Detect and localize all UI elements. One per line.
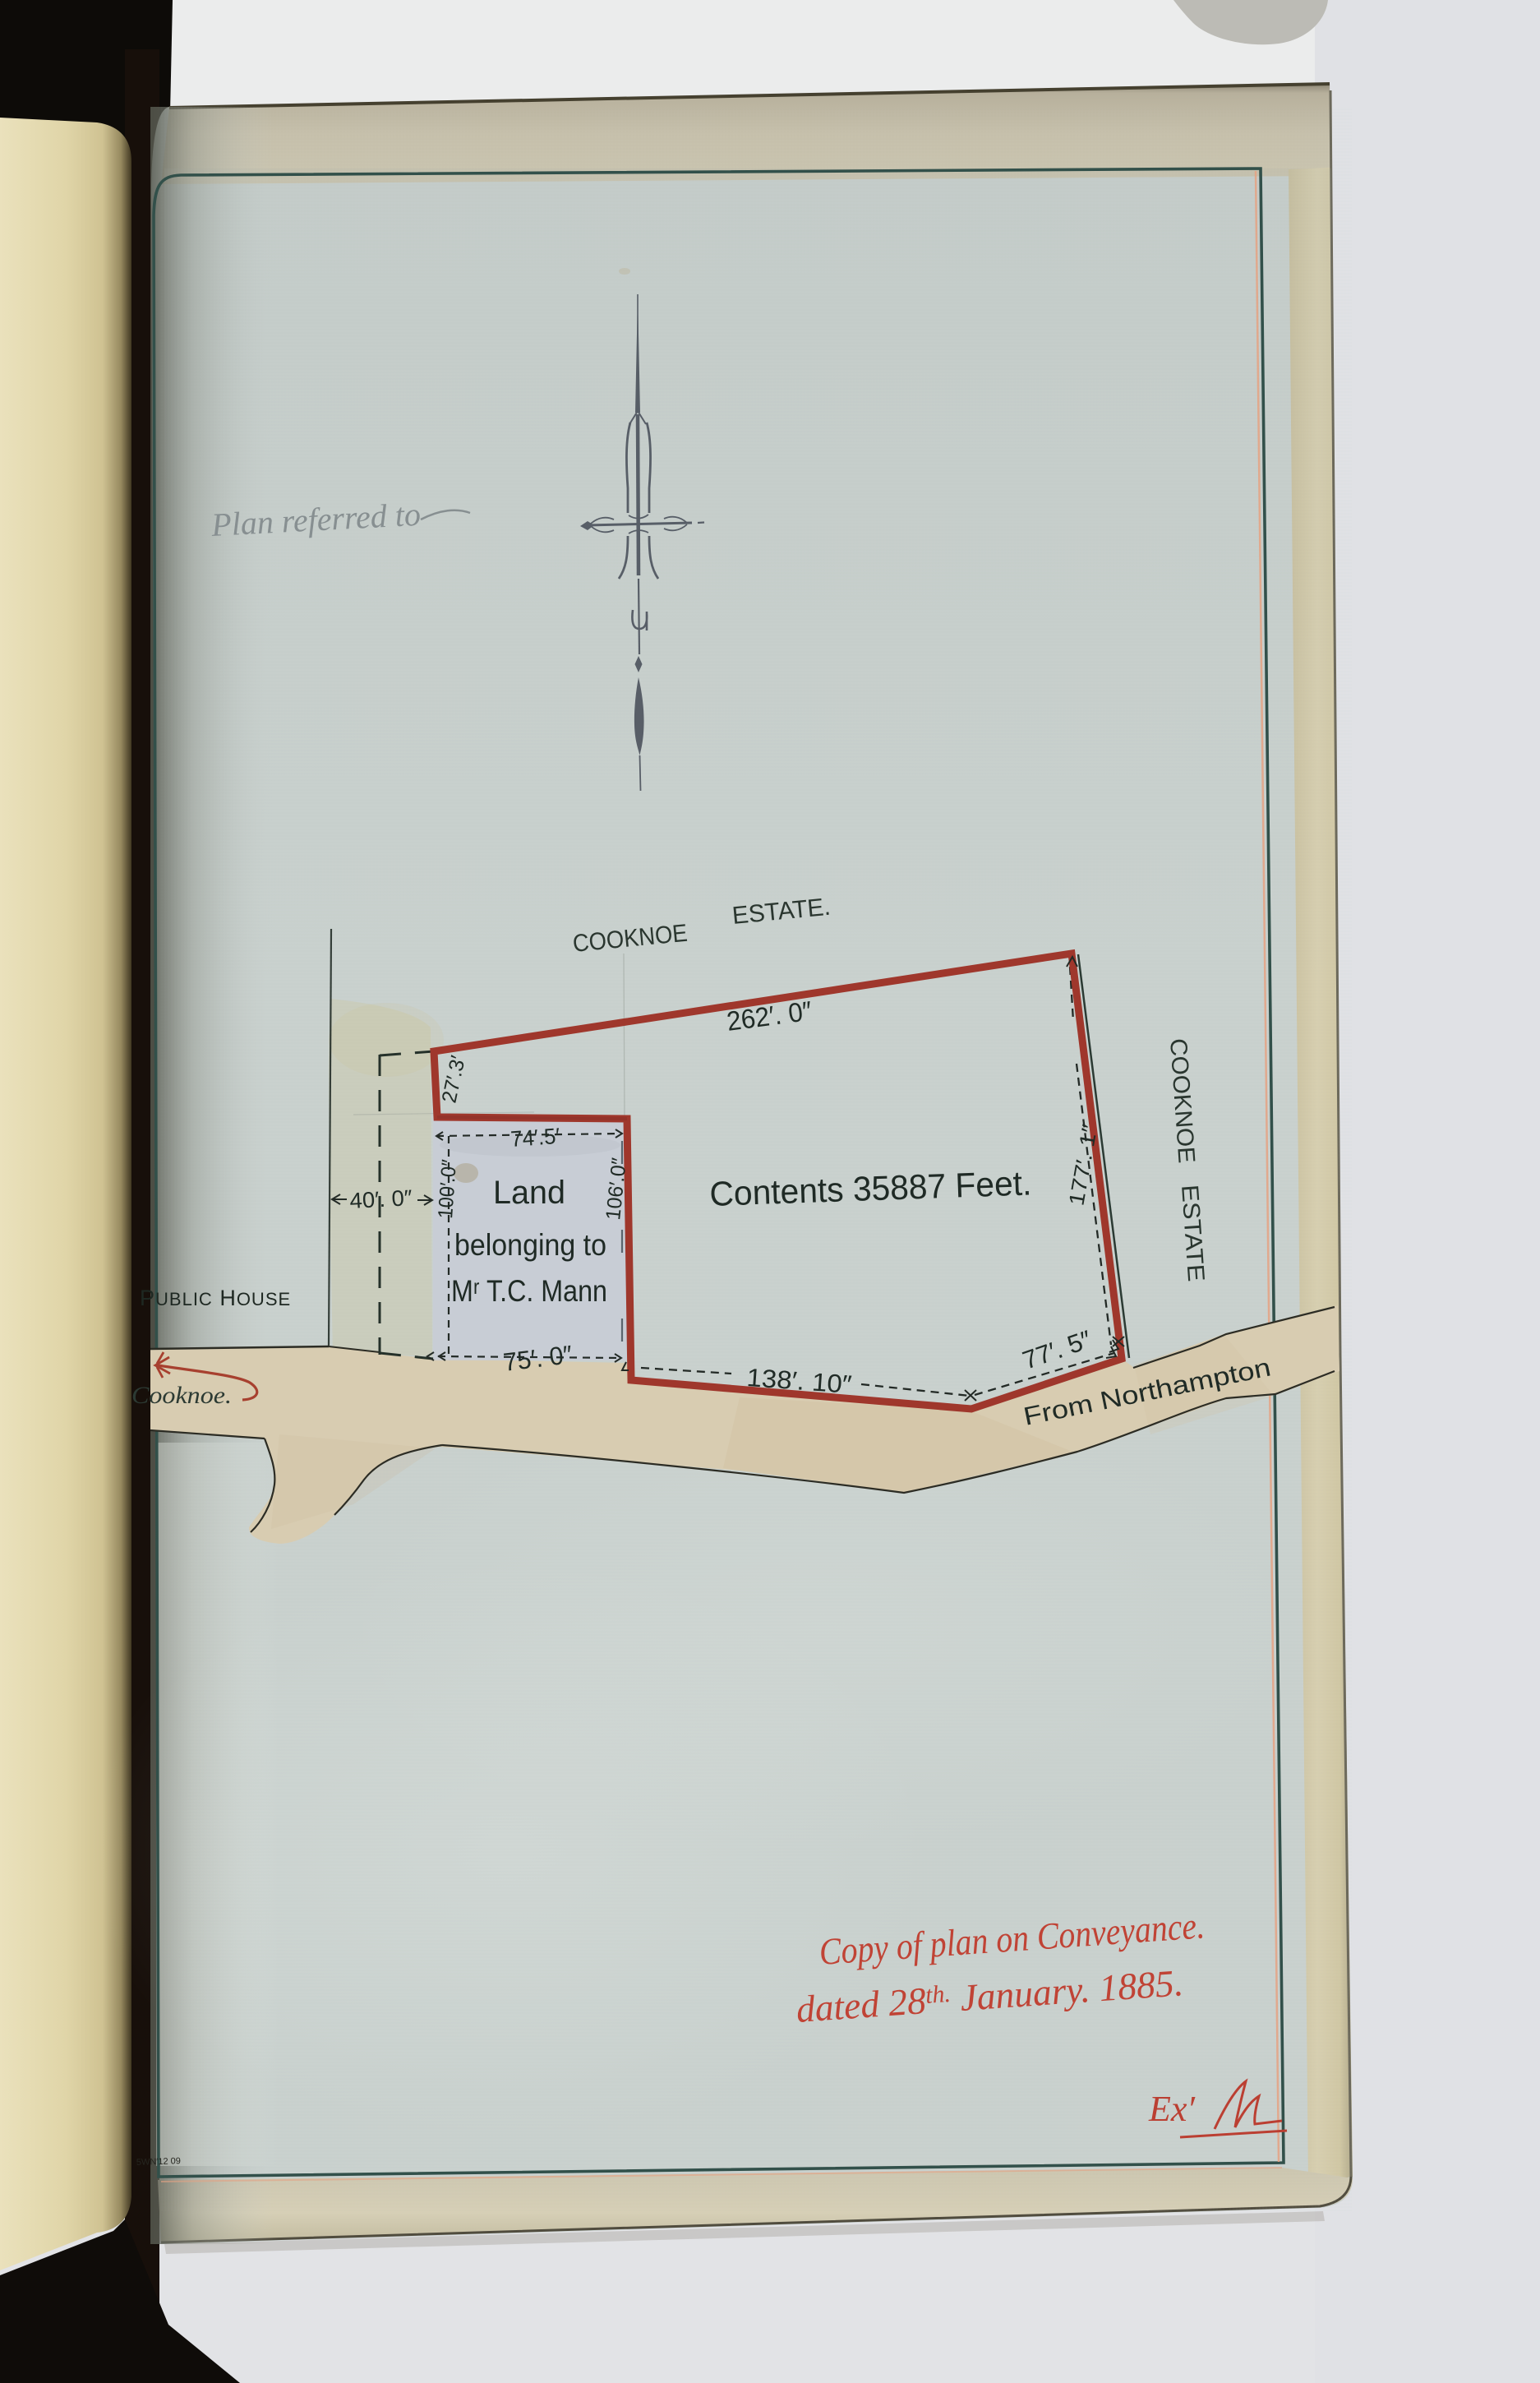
svg-text:belonging to: belonging to xyxy=(454,1228,606,1262)
svg-text:74′.5′: 74′.5′ xyxy=(509,1124,560,1152)
svg-text:100′.0″: 100′.0″ xyxy=(434,1159,461,1220)
svg-text:Land: Land xyxy=(493,1175,565,1211)
svg-text:40′. 0″: 40′. 0″ xyxy=(349,1185,413,1213)
svg-text:Cooknoe.: Cooknoe. xyxy=(131,1382,232,1409)
svg-text:5WN′12 09: 5WN′12 09 xyxy=(136,2156,181,2168)
svg-text:PUBLIC HOUSE: PUBLIC HOUSE xyxy=(140,1286,291,1310)
svg-text:Mʳ T.C. Mann: Mʳ T.C. Mann xyxy=(451,1274,607,1308)
svg-text:Ex′: Ex′ xyxy=(1148,2089,1196,2129)
